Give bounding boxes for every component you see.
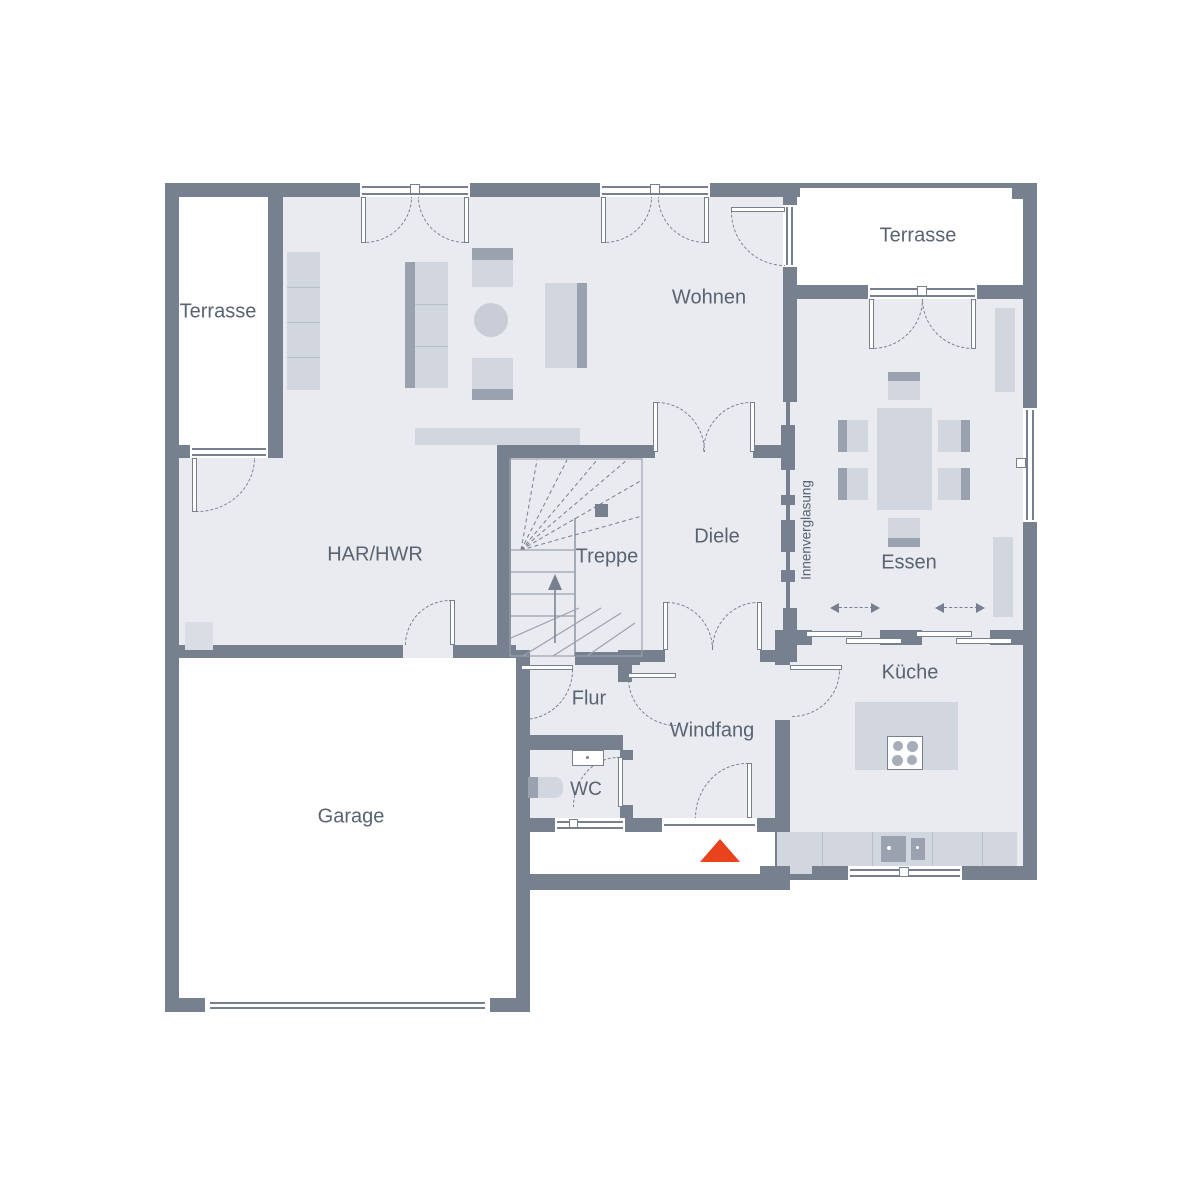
wohnen-shelf — [287, 252, 320, 390]
har-terrace-door-glass-line — [192, 448, 266, 450]
wall-wohnen-right-b — [783, 267, 797, 299]
garage-door-line — [210, 1007, 485, 1009]
dining-table — [877, 408, 932, 510]
sliding-door-2-panel-b — [956, 638, 1012, 644]
wall-terrace-har-2 — [268, 445, 283, 458]
sliding-door-2-arrowhead-right — [976, 603, 985, 613]
sliding-door-2-arrow-line — [944, 607, 978, 608]
wohnen-shelf-line — [287, 287, 320, 288]
essen-sideboard-bottom — [993, 537, 1013, 617]
wc-window-glass-line — [557, 821, 623, 823]
har-terrace-door-glass-line — [192, 454, 266, 456]
essen-sideboard-top — [995, 308, 1015, 392]
wohnen-terrace-door-glass-line — [786, 207, 788, 265]
wohnen-coffee-table — [474, 303, 508, 337]
dining-chair-bottom-backrest — [888, 538, 920, 547]
essen-window-pivot — [1016, 458, 1026, 468]
cooktop-burner — [892, 755, 903, 766]
room-label-garage: Garage — [318, 806, 385, 829]
front-door-sill-line — [664, 824, 755, 826]
essen-window-glass-line — [1032, 410, 1034, 520]
wohnen-sofa-1-line — [415, 346, 448, 347]
wall-glazing-upper — [783, 299, 797, 402]
wall-wohnen-diele-2 — [753, 445, 783, 458]
wohnen-armchair-top-backrest — [472, 248, 513, 260]
wc-toilet-tank — [528, 777, 538, 798]
glazing-annotation: Innenverglasung — [799, 480, 814, 580]
wall-essen-terrace-2 — [977, 285, 1023, 299]
room-label-wc: WC — [570, 779, 602, 801]
wc-window-pivot — [569, 819, 578, 828]
kitchen-sink — [881, 836, 906, 862]
wall-terrace-left-wohnen — [268, 183, 283, 445]
har-garage-door-leaf — [450, 600, 455, 645]
wohnen-terrace-door-glass-line — [791, 207, 793, 265]
wall-porch-bottom — [516, 874, 790, 890]
har-appliance — [185, 622, 213, 650]
wall-left — [165, 183, 179, 1012]
dining-chair-left-1-backrest — [838, 420, 847, 452]
wc-window-glass-line — [557, 827, 623, 829]
wall-right — [1023, 183, 1037, 880]
kitchen-window-pivot — [899, 867, 909, 877]
room-label-flur: Flur — [572, 688, 606, 711]
wall-har-bottom-2 — [453, 645, 516, 658]
cooktop — [887, 736, 923, 770]
wall-south-entry-post — [757, 818, 775, 832]
cooktop-burner — [907, 741, 918, 752]
dining-chair-left-2-backrest — [838, 468, 847, 500]
entry-step — [790, 856, 812, 874]
glazing-mullion-3 — [781, 520, 795, 552]
wall-terrace-har-1 — [165, 445, 190, 458]
wall-diele-bottom-2 — [760, 650, 783, 662]
wohnen-sofa-1-backrest — [405, 262, 415, 388]
kitchen-counter-line — [982, 832, 983, 866]
wall-windfang-kitchen-lower — [775, 720, 790, 832]
glazing-mullion-1 — [781, 425, 795, 470]
kitchen-counter-line — [822, 832, 823, 866]
room-label-diele: Diele — [694, 526, 740, 549]
dining-chair-right-1-backrest — [961, 420, 970, 452]
cooktop-burner — [893, 741, 903, 751]
room-label-terrasse-right: Terrasse — [880, 225, 957, 248]
essen-window-glass-line — [1026, 410, 1028, 520]
wc-toilet-bowl — [538, 777, 563, 798]
dining-chair-top-backrest — [888, 372, 920, 381]
sliding-door-1-arrowhead-right — [871, 603, 880, 613]
kitchen-counter-line — [932, 832, 933, 866]
wc-door-leaf — [618, 757, 623, 807]
wall-wohnen-diele-1 — [497, 445, 655, 458]
sliding-door-2-arrowhead-left — [935, 603, 944, 613]
entrance-arrow — [700, 839, 740, 862]
wohnen-sofa-1-line — [415, 304, 448, 305]
french-door-2-pivot — [650, 184, 660, 194]
cooktop-burner — [907, 755, 917, 765]
kitchen-sink-small-drain — [916, 846, 919, 849]
glazing-mullion-2 — [781, 495, 795, 505]
room-label-wohnen: Wohnen — [672, 287, 746, 310]
kitchen-sink-drain — [887, 846, 891, 850]
kitchen-sink-small — [911, 838, 925, 860]
garage-door-line — [210, 1002, 485, 1004]
terrace-right-top-line — [800, 183, 1023, 188]
terrace-french-door-pivot — [917, 286, 927, 296]
room-label-har-hwr: HAR/HWR — [327, 544, 423, 567]
wall-south-wc-1 — [516, 818, 555, 832]
wall-wc-flur — [516, 735, 623, 750]
wohnen-sofa-2-backrest — [577, 283, 587, 368]
room-label-kueche: Küche — [882, 662, 939, 685]
wohnen-lowboard — [415, 428, 580, 445]
room-label-essen: Essen — [881, 552, 937, 575]
har-terrace-door-frame — [190, 445, 268, 458]
sliding-door-1-panel-a — [806, 631, 862, 637]
floor-plan: Terrasse Terrasse Wohnen HAR/HWR Treppe … — [0, 0, 1200, 1200]
wohnen-shelf-line — [287, 357, 320, 358]
french-door-1-pivot — [410, 184, 420, 194]
glazing-mullion-4 — [781, 570, 795, 582]
sliding-door-1-arrow-line — [839, 607, 873, 608]
wohnen-armchair-bottom-backrest — [472, 389, 513, 400]
sliding-door-2-panel-a — [916, 631, 972, 637]
sliding-door-1-panel-b — [846, 638, 902, 644]
wall-essen-terrace-1 — [797, 285, 868, 299]
room-label-treppe: Treppe — [576, 546, 639, 569]
wc-washbasin-drain — [586, 756, 589, 759]
room-label-windfang: Windfang — [670, 720, 755, 743]
dining-chair-right-2-backrest — [961, 468, 970, 500]
sliding-door-1-arrowhead-left — [830, 603, 839, 613]
wohnen-shelf-line — [287, 322, 320, 323]
kitchen-counter-line — [872, 832, 873, 866]
garage-door — [205, 998, 490, 1012]
room-label-terrasse-left: Terrasse — [180, 301, 257, 324]
wall-wohnen-right-a — [783, 183, 797, 205]
front-door-leaf — [747, 763, 752, 818]
